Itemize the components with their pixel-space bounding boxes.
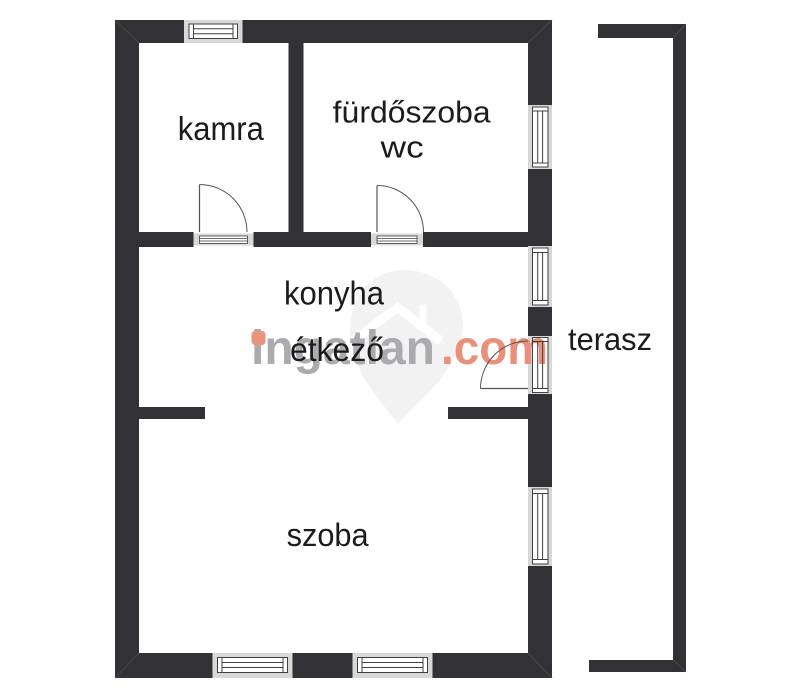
svg-text:.com: .com [441,322,548,375]
svg-text:konyha: konyha [284,276,384,313]
svg-text:kamra: kamra [178,110,265,147]
svg-text:fürdőszoba: fürdőszoba [333,96,491,130]
svg-text:étkező: étkező [290,331,384,368]
svg-text:wc: wc [380,131,424,165]
svg-text:terasz: terasz [568,321,652,357]
svg-text:szoba: szoba [287,517,369,553]
